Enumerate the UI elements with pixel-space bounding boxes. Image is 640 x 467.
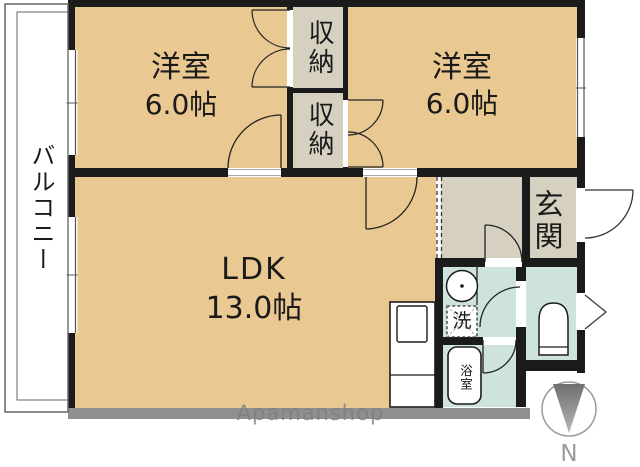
door-bedroom-right	[363, 168, 417, 229]
compass-n-label: N	[549, 442, 589, 467]
entrance-label: 玄関	[531, 184, 563, 258]
door-washroom	[485, 225, 522, 267]
bedroom-left-size: 6.0帖	[121, 89, 241, 120]
washbasin-icon	[447, 267, 478, 305]
floorplan-canvas: バルコニー 洋室 6.0帖 洋室 6.0帖 収納 収納 LDK 13.0帖 玄関…	[0, 0, 640, 467]
bathroom-label: 浴室	[457, 356, 472, 398]
door-bedroom-left	[228, 115, 281, 177]
laundry-label: 洗	[450, 311, 474, 332]
ldk-name: LDK	[194, 253, 314, 287]
toilet-icon	[539, 303, 568, 355]
bedroom-right-name: 洋室	[402, 51, 522, 85]
bedroom-right-size: 6.0帖	[402, 88, 522, 119]
window-bedroom-left	[67, 50, 78, 155]
door-closet-lower	[343, 100, 383, 167]
watermark-text: Apamanshop	[228, 402, 393, 426]
closet-lower-label: 収納	[303, 97, 333, 163]
door-bath	[483, 337, 516, 373]
ldk-hall-dashed-boundary	[437, 177, 442, 258]
ldk-size: 13.0帖	[184, 292, 324, 326]
door-toilet	[480, 281, 526, 327]
closet-upper-label: 収納	[303, 13, 333, 83]
window-ldk	[67, 217, 78, 333]
kitchen-counter	[390, 302, 435, 407]
balcony-label: バルコニー	[26, 138, 54, 278]
compass-icon	[542, 382, 596, 436]
toilet-window-icon	[576, 293, 606, 330]
window-bedroom-right	[576, 38, 586, 137]
door-closet-upper	[252, 10, 293, 87]
door-entrance	[576, 188, 633, 242]
bedroom-left-name: 洋室	[121, 51, 241, 85]
